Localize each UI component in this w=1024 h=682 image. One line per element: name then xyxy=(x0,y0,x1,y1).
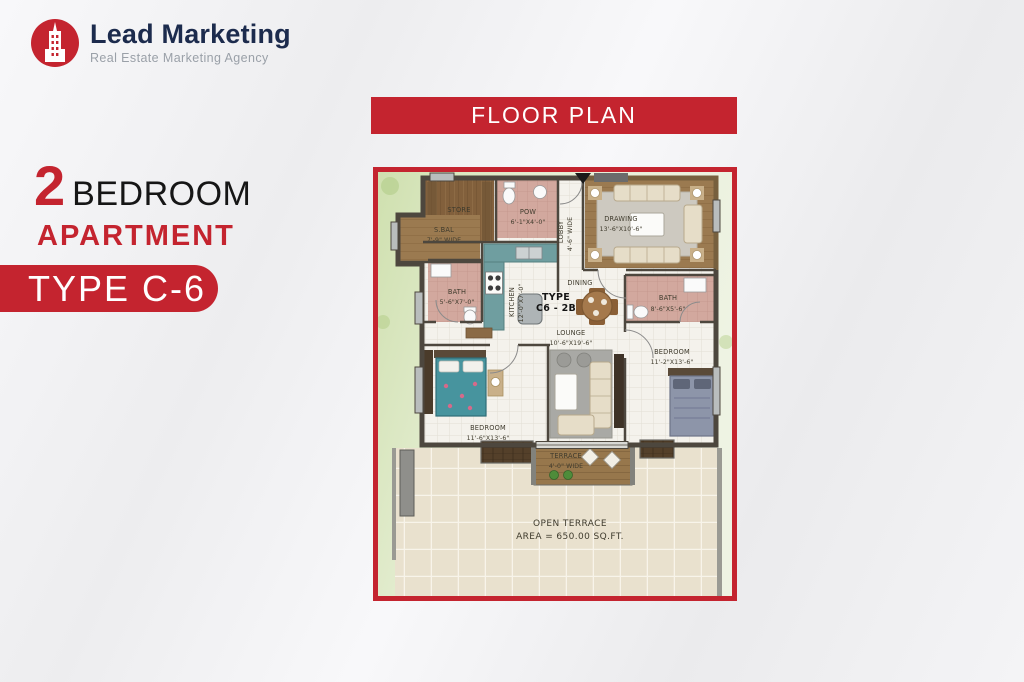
lamp-icon xyxy=(591,189,600,198)
pouf-icon xyxy=(577,353,591,367)
room-side-balcony: S.BAL 7'-9" WIDE xyxy=(398,215,480,262)
svg-text:LOBBY: LOBBY xyxy=(557,220,565,243)
brand-name: Lead Marketing xyxy=(90,21,291,48)
lamp-icon xyxy=(491,378,500,387)
headboard-icon xyxy=(668,368,714,376)
sink-icon xyxy=(431,264,451,277)
headline-apartment: APARTMENT xyxy=(0,220,270,253)
pouf-icon xyxy=(557,353,571,367)
plant-icon xyxy=(564,471,573,480)
entrance-lintel xyxy=(594,173,628,182)
svg-text:11'-2"X13'-6": 11'-2"X13'-6" xyxy=(651,359,694,366)
svg-text:LOUNGE: LOUNGE xyxy=(557,329,586,337)
svg-text:POW: POW xyxy=(520,208,537,216)
tree-icon xyxy=(381,177,399,195)
lamp-icon xyxy=(693,189,702,198)
brand-tagline: Real Estate Marketing Agency xyxy=(90,51,291,65)
dresser-icon xyxy=(466,328,492,338)
room-bath-1: BATH 5'-6"X7'-0" xyxy=(428,260,482,324)
type-badge: TYPE C-6 xyxy=(0,265,218,312)
headline-number: 2 xyxy=(34,158,65,214)
dining-table-icon xyxy=(582,291,612,321)
lamp-icon xyxy=(693,251,702,260)
floor-plan-frame: OPEN TERRACE AREA = 650.00 SQ.FT. STORE … xyxy=(373,167,737,601)
armchair-icon xyxy=(684,205,702,243)
room-drawing: DRAWING 13'-6"X10'-6" xyxy=(585,180,714,268)
svg-text:DRAWING: DRAWING xyxy=(604,215,637,223)
tv-console-icon xyxy=(614,354,624,428)
svg-text:4'-0" WIDE: 4'-0" WIDE xyxy=(549,463,583,470)
toilet-icon xyxy=(634,306,648,318)
svg-text:S.BAL: S.BAL xyxy=(434,226,454,234)
stove-icon xyxy=(486,272,503,294)
brand-logo: Lead Marketing Real Estate Marketing Age… xyxy=(30,18,291,68)
svg-text:13'-6"X10'-6": 13'-6"X10'-6" xyxy=(600,226,643,233)
svg-text:KITCHEN: KITCHEN xyxy=(508,287,516,317)
headline-block: 2 BEDROOM APARTMENT TYPE C-6 xyxy=(0,158,270,312)
svg-text:8'-6"X5'-6": 8'-6"X5'-6" xyxy=(651,306,686,313)
room-pow: POW 6'-1"X4'-0" xyxy=(497,180,558,238)
svg-text:BEDROOM: BEDROOM xyxy=(654,348,690,356)
coffee-table-icon xyxy=(555,374,577,410)
svg-text:TYPE: TYPE xyxy=(542,292,570,303)
svg-text:10'-6"X19'-6": 10'-6"X19'-6" xyxy=(550,340,593,347)
building-icon xyxy=(30,18,80,68)
svg-text:BEDROOM: BEDROOM xyxy=(470,424,506,432)
toilet-icon xyxy=(503,188,515,204)
svg-text:TERRACE: TERRACE xyxy=(549,452,582,460)
page: Lead Marketing Real Estate Marketing Age… xyxy=(0,0,1024,682)
headboard-icon xyxy=(434,350,486,358)
plant-icon xyxy=(550,471,559,480)
room-bath-2: BATH 8'-6"X5'-6" xyxy=(625,275,716,322)
svg-text:DINING: DINING xyxy=(567,279,592,287)
open-terrace-label: OPEN TERRACE xyxy=(533,519,607,529)
terrace-pillar xyxy=(400,450,414,516)
floor-plan-drawing: OPEN TERRACE AREA = 650.00 SQ.FT. STORE … xyxy=(378,172,732,596)
svg-text:C6 - 2B: C6 - 2B xyxy=(536,303,576,314)
svg-text:BATH: BATH xyxy=(659,294,677,302)
svg-text:6'-1"X4'-0": 6'-1"X4'-0" xyxy=(511,219,546,226)
open-terrace-area: AREA = 650.00 SQ.FT. xyxy=(516,532,624,542)
svg-text:5'-6"X7'-0": 5'-6"X7'-0" xyxy=(440,299,475,306)
sink-icon xyxy=(684,278,706,292)
svg-text:4'-6" WIDE: 4'-6" WIDE xyxy=(567,217,574,251)
svg-text:BATH: BATH xyxy=(448,288,466,296)
headline-bedroom: BEDROOM xyxy=(72,175,251,214)
sofa-icon xyxy=(558,415,594,435)
svg-text:STORE: STORE xyxy=(447,206,470,214)
sink-icon xyxy=(534,186,547,199)
svg-text:12'-0"X7'-0": 12'-0"X7'-0" xyxy=(518,284,525,323)
wardrobe-icon xyxy=(424,350,433,414)
lamp-icon xyxy=(591,251,600,260)
floor-plan-banner: FLOOR PLAN xyxy=(371,97,737,134)
